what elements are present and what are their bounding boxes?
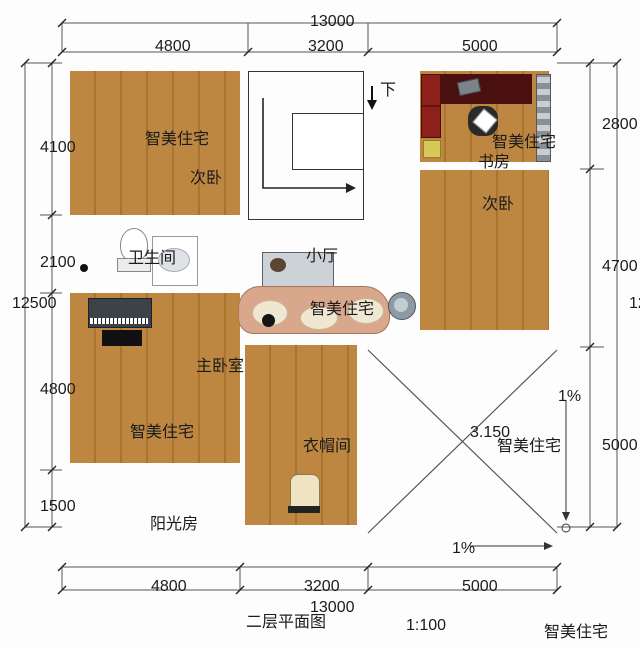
room-label-bedroom-topleft: 次卧 xyxy=(190,164,222,188)
nightstand xyxy=(73,352,87,362)
room-label-hall: 小厅 xyxy=(306,242,338,266)
door-arc-study xyxy=(420,126,458,164)
dim-left-seg3: 1500 xyxy=(40,498,76,516)
bedroom-right-pillow xyxy=(490,252,512,286)
wall-cloak-top xyxy=(240,337,365,345)
dim-bottom-seg1: 3200 xyxy=(304,578,340,596)
door-arc-bedroom-right xyxy=(425,170,461,206)
room-label-sunroom: 阳光房 xyxy=(150,510,198,534)
stair-landing xyxy=(292,113,364,170)
wall-stair-left xyxy=(240,71,248,218)
wall-cloak-left xyxy=(240,400,248,525)
room-label-master: 主卧室 xyxy=(196,352,244,376)
bedroom-topleft-pillow xyxy=(112,84,140,100)
sheet-title: 二层平面图 xyxy=(246,608,326,632)
stair-flight-side xyxy=(249,113,292,168)
master-blanket xyxy=(74,380,98,458)
bedroom-topleft-wardrobe xyxy=(210,90,236,164)
watermark-text: 智美住宅 xyxy=(310,295,374,319)
dim-left-seg2: 4800 xyxy=(40,381,76,399)
dim-left-total: 12500 xyxy=(12,295,57,313)
room-label-bathroom: 卫生间 xyxy=(128,244,176,268)
bedroom-right-blanket xyxy=(520,204,548,298)
dim-left-seg0: 4100 xyxy=(40,139,76,157)
wall-bath-right-b xyxy=(197,266,205,285)
wall-bedroomTL-bottom-a xyxy=(62,215,192,223)
bedroom-right-pillow xyxy=(490,212,512,246)
brand-name: 智美住宅 xyxy=(544,624,608,641)
bedroom-topleft-blanket xyxy=(74,98,96,175)
study-desk xyxy=(436,74,532,104)
dim-right-seg2: 5000 xyxy=(602,437,638,455)
dim-top-seg1: 3200 xyxy=(308,38,344,56)
wall-bedroomTL-bottom-b xyxy=(232,215,248,223)
wall-bath-bottom xyxy=(62,285,205,293)
nightstand xyxy=(73,72,87,82)
cloakroom-chair-base xyxy=(288,506,320,513)
master-tv xyxy=(102,330,142,346)
wall-hall-right-b xyxy=(412,164,420,330)
room-label-cloakroom: 衣帽间 xyxy=(303,432,351,456)
cloakroom-chair xyxy=(290,474,320,510)
floor-plan-sheet: 次卧 书房 次卧 卫生间 小厅 主卧室 衣帽间 阳光房 下 3.150 1% 1… xyxy=(0,0,640,649)
dim-bottom-seg0: 4800 xyxy=(151,578,187,596)
wall-bath-right-a xyxy=(197,223,205,228)
brand-mark: 智美住宅 xyxy=(544,618,608,642)
dim-right-seg0: 2800 xyxy=(602,116,638,134)
stairs-down-label: 下 xyxy=(380,76,396,100)
stair-flight-bottom xyxy=(249,168,362,218)
wall-master-bottom xyxy=(62,463,248,471)
wall-cloak-bottom-b xyxy=(342,525,365,533)
wall-cloak-right xyxy=(357,345,365,525)
dim-bottom-seg2: 5000 xyxy=(462,578,498,596)
wall-top xyxy=(62,63,557,71)
room-label-bedroom-right: 次卧 xyxy=(482,190,514,214)
hall-side-table-top xyxy=(394,298,408,312)
master-pillow xyxy=(116,366,146,384)
sofa-dark-pillow xyxy=(262,314,275,327)
watermark-text: 智美住宅 xyxy=(497,432,561,456)
watermark-text: 智美住宅 xyxy=(492,128,556,152)
watermark-text: 智美住宅 xyxy=(145,125,209,149)
sheet-scale: 1:100 xyxy=(406,617,446,635)
wall-hall-right-a xyxy=(412,71,420,126)
roof-slope-bottom-label: 1% xyxy=(452,540,475,558)
cloakroom-wardrobe-left xyxy=(248,348,272,522)
bedroom-right-tv-cabinet xyxy=(420,198,434,284)
roof-slope-right-label: 1% xyxy=(558,388,581,406)
nightstand xyxy=(73,450,87,460)
floor-drain xyxy=(80,264,88,272)
door-arc-master xyxy=(204,296,244,336)
dim-top-total: 13000 xyxy=(310,13,355,31)
bedroom-topleft-bench xyxy=(76,188,194,212)
bedroom-topleft-pillow xyxy=(80,84,108,100)
dim-top-seg2: 5000 xyxy=(462,38,498,56)
stair-flight-top xyxy=(249,72,361,113)
dim-top-seg0: 4800 xyxy=(155,38,191,56)
wall-bedroom-right-bottom xyxy=(412,330,557,338)
bedroom-right-bench xyxy=(430,304,542,326)
master-pillow xyxy=(82,366,112,384)
wall-right xyxy=(549,63,557,338)
piano-keys xyxy=(90,318,148,324)
dim-left-seg1: 2100 xyxy=(40,254,76,272)
dim-right-seg1: 4700 xyxy=(602,258,638,276)
hall-plant xyxy=(270,258,286,272)
dim-right-total: 12500 xyxy=(629,295,640,313)
watermark-text: 智美住宅 xyxy=(130,418,194,442)
wall-cloak-bottom-a xyxy=(240,525,262,533)
